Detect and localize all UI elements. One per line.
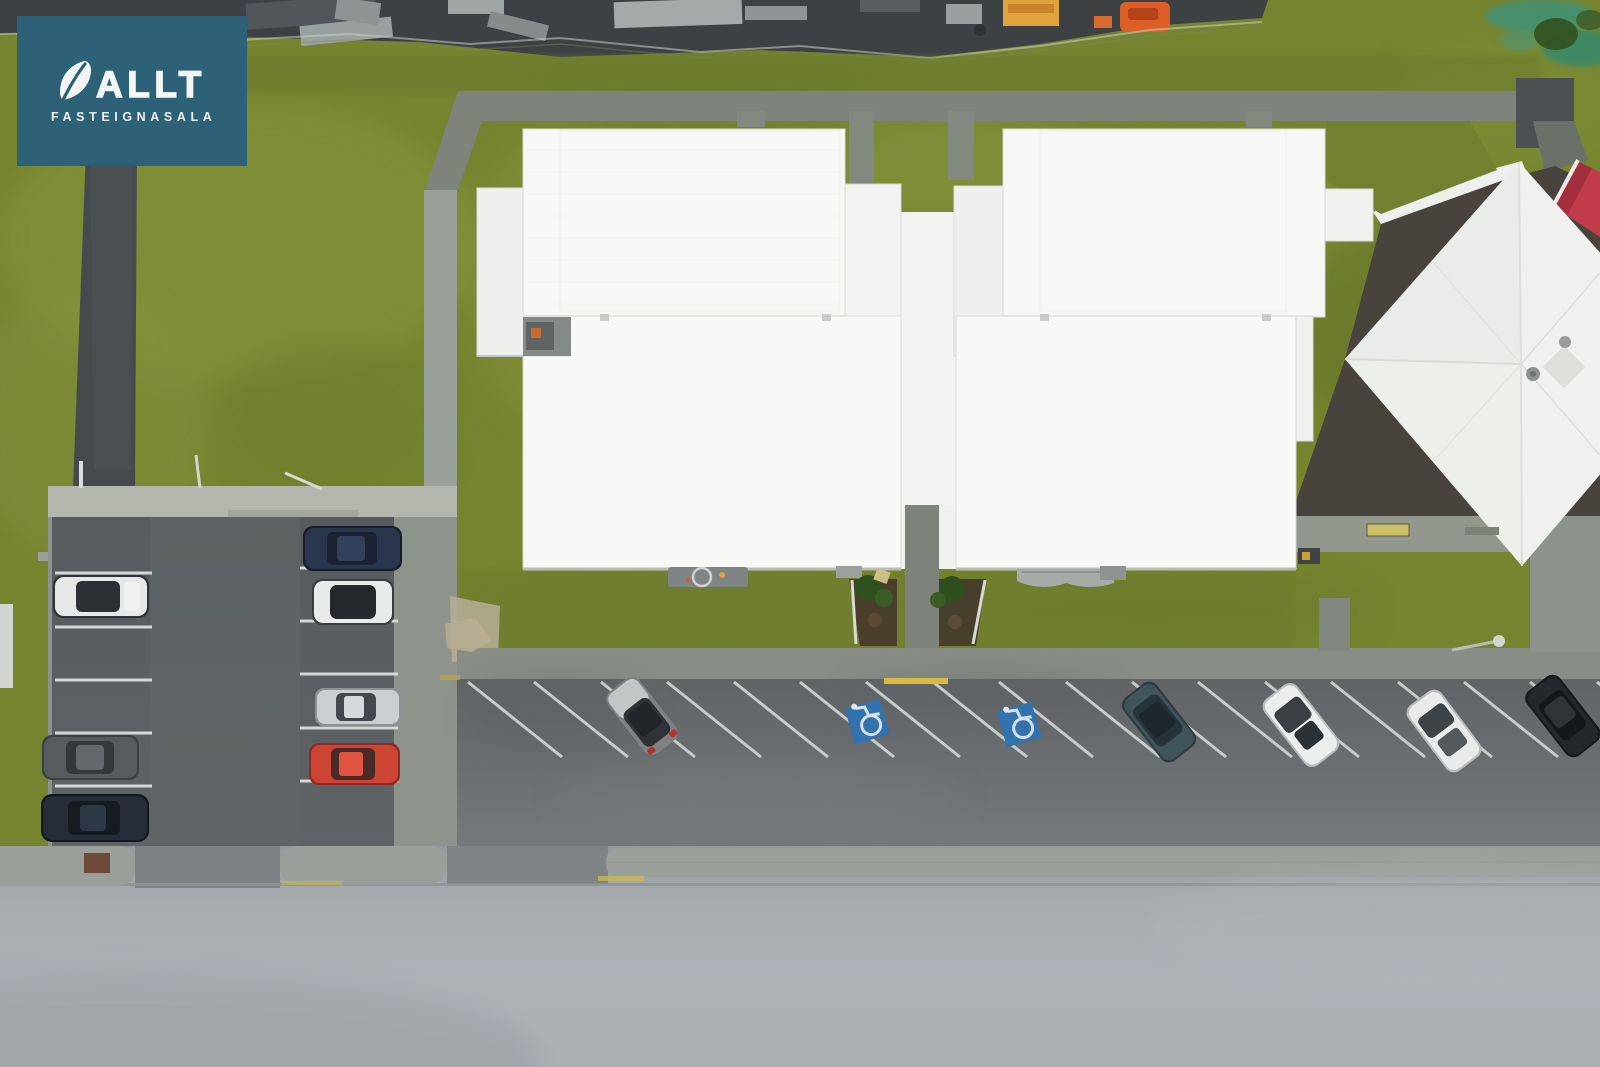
svg-text:FASTEIGNASALA: FASTEIGNASALA [51, 110, 216, 124]
svg-text:ALLT: ALLT [96, 64, 206, 105]
